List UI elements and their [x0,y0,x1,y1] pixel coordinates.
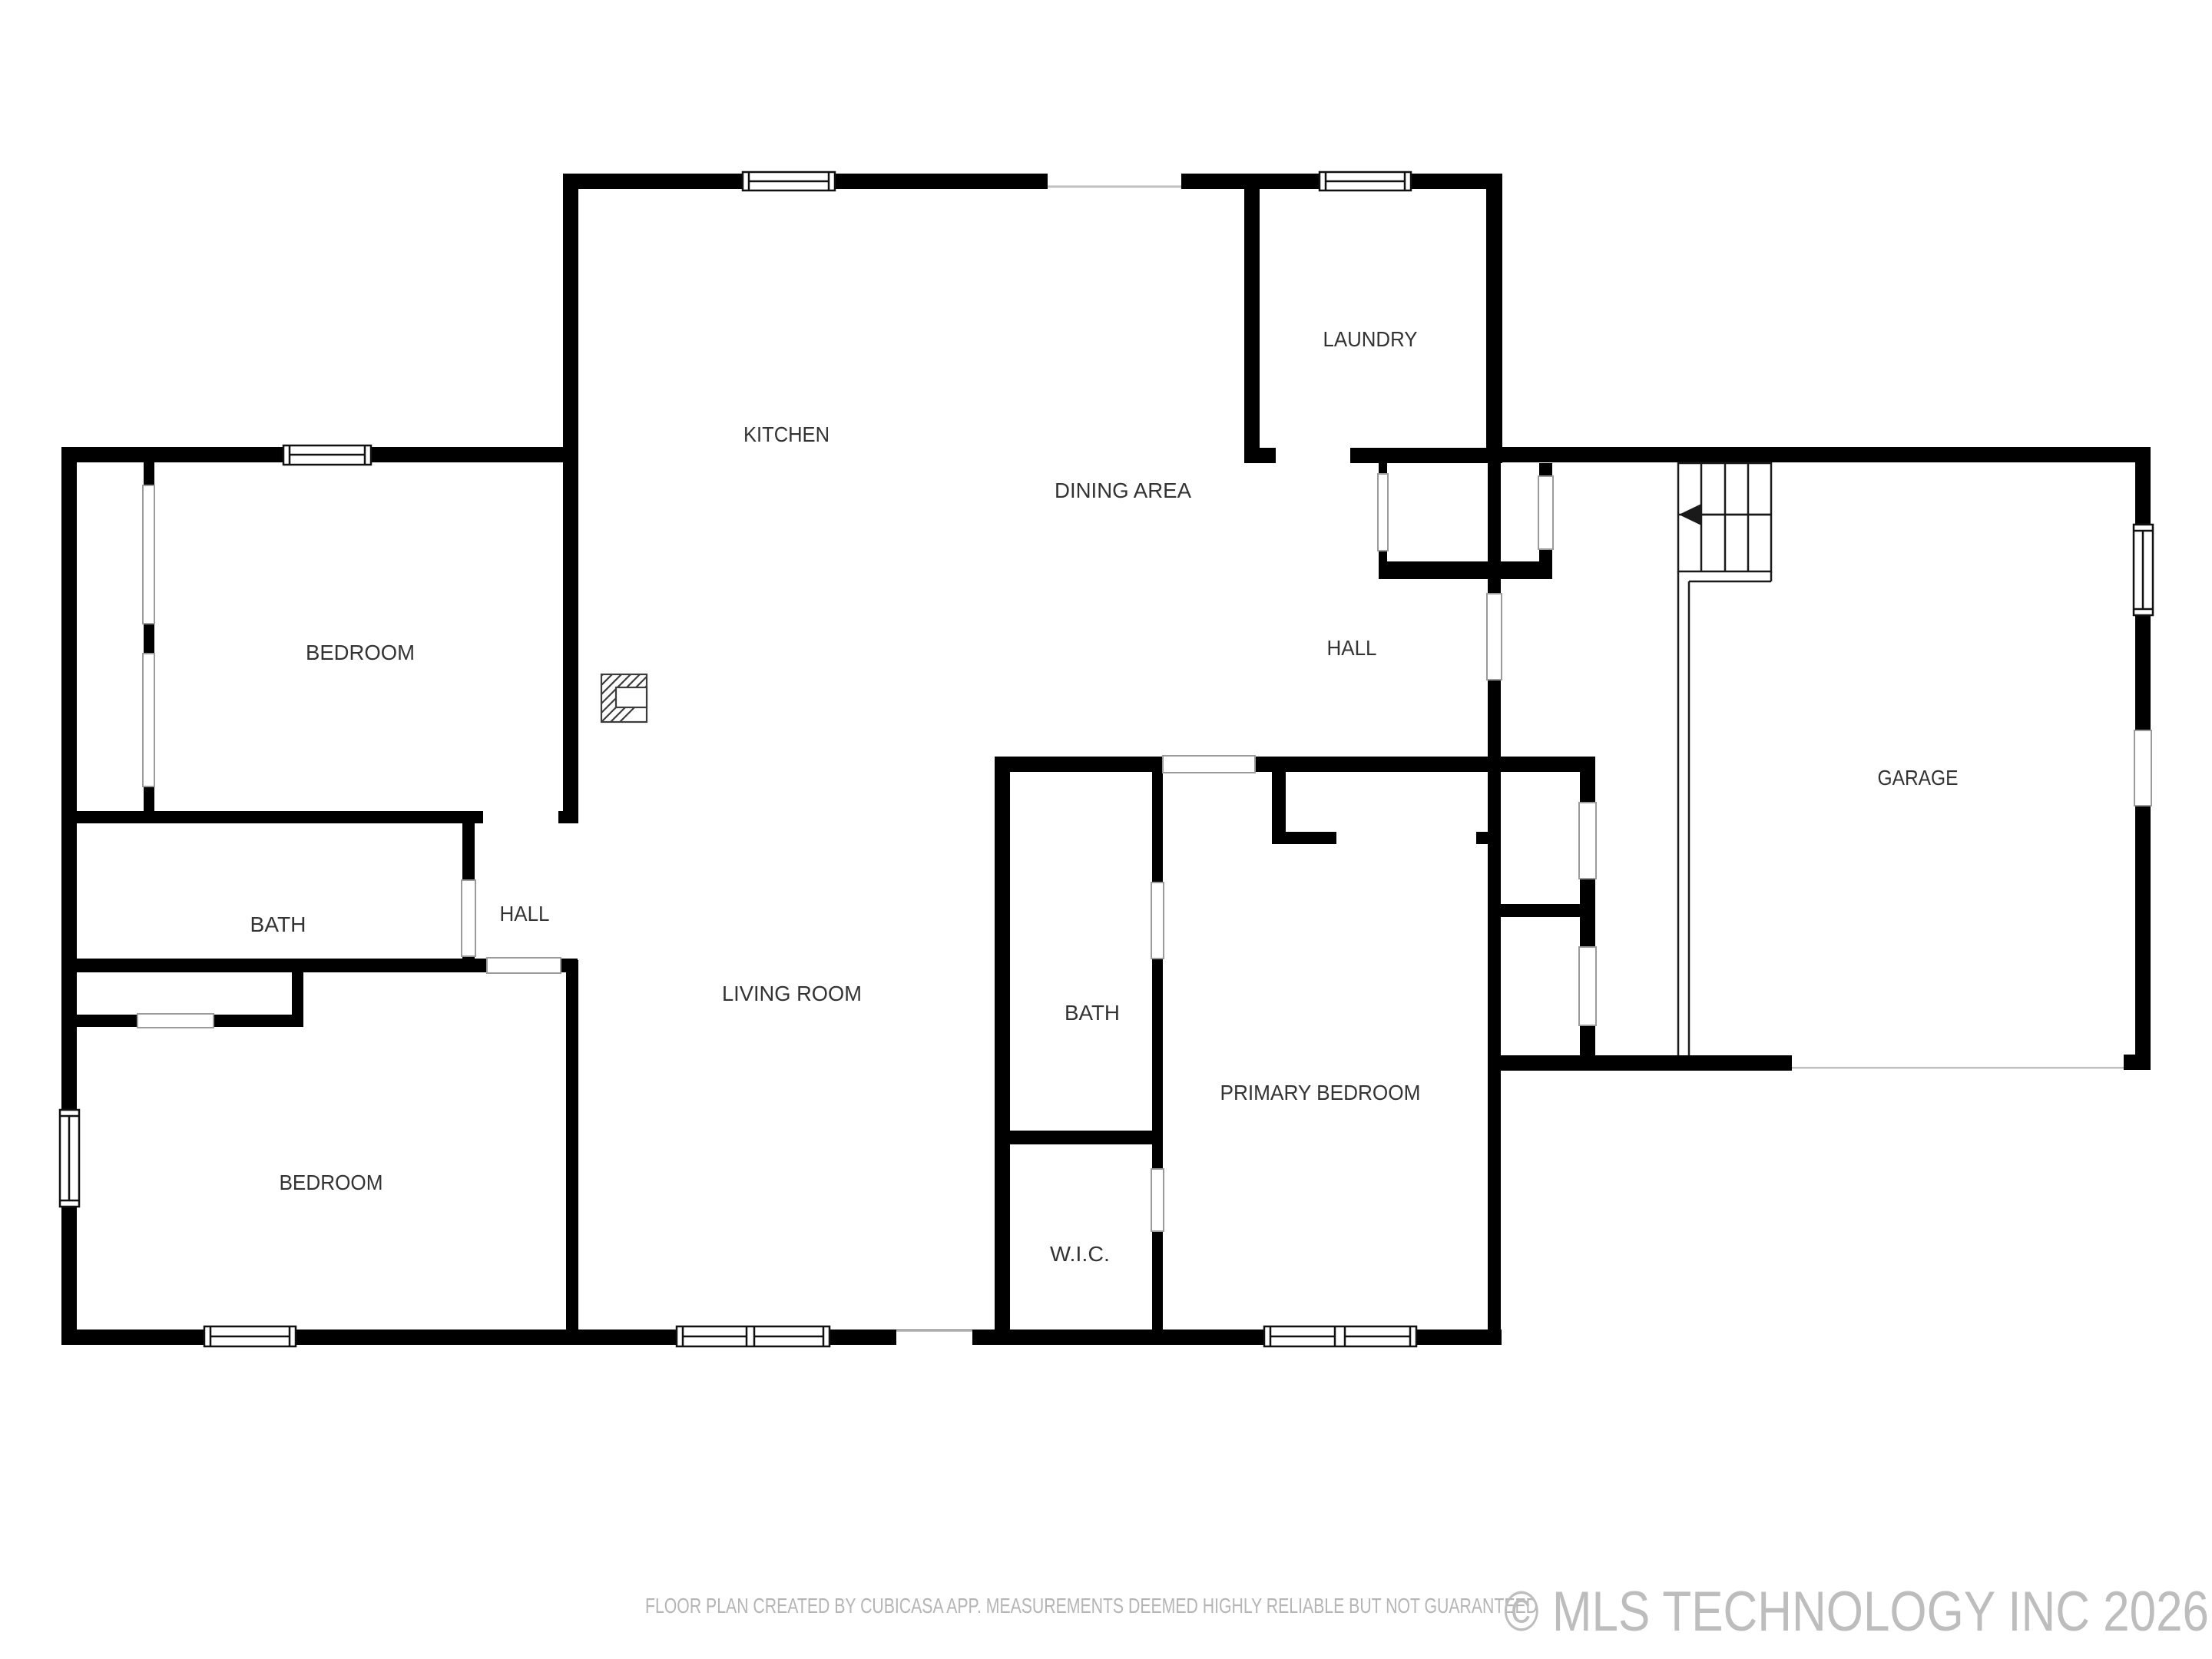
svg-text:HALL: HALL [500,902,550,926]
svg-text:BATH: BATH [1065,1001,1120,1025]
svg-text:FLOOR PLAN CREATED BY CUBICASA: FLOOR PLAN CREATED BY CUBICASA APP. MEAS… [645,1594,1538,1618]
svg-text:GARAGE: GARAGE [1878,766,1959,790]
svg-text:PRIMARY BEDROOM: PRIMARY BEDROOM [1220,1081,1421,1104]
svg-text:© MLS TECHNOLOGY INC 2026: © MLS TECHNOLOGY INC 2026 [1504,1581,2209,1643]
svg-text:KITCHEN: KITCHEN [743,422,829,446]
svg-text:LIVING ROOM: LIVING ROOM [722,982,862,1005]
svg-text:DINING AREA: DINING AREA [1055,478,1191,502]
svg-text:LAUNDRY: LAUNDRY [1323,327,1418,351]
svg-text:BATH: BATH [250,912,306,936]
svg-text:BEDROOM: BEDROOM [306,641,415,664]
svg-text:HALL: HALL [1327,636,1377,660]
svg-text:BEDROOM: BEDROOM [280,1171,383,1194]
svg-text:W.I.C.: W.I.C. [1050,1242,1110,1266]
